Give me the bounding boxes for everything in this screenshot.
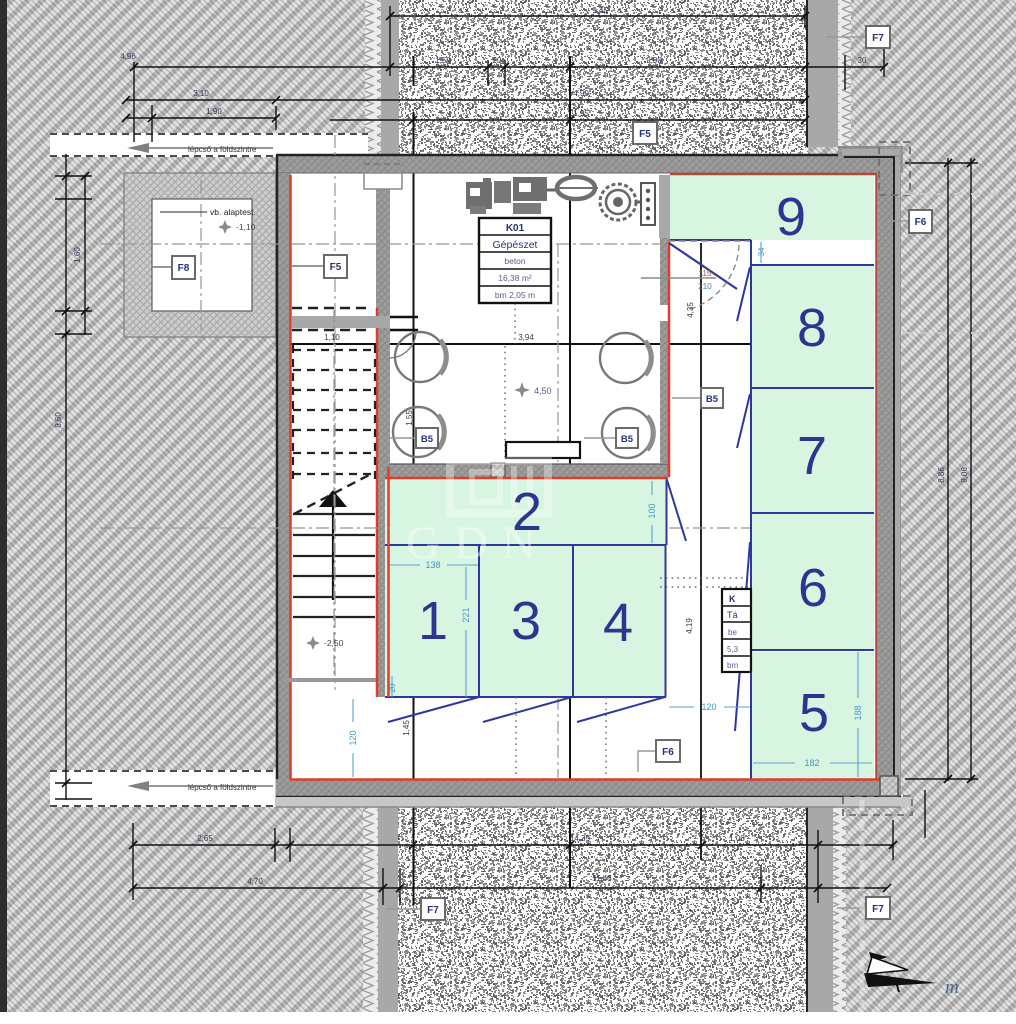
svg-text:3: 3: [511, 591, 541, 651]
svg-text:34: 34: [757, 247, 766, 256]
svg-text:F8: F8: [178, 263, 190, 274]
svg-text:-1,10: -1,10: [236, 222, 256, 232]
svg-text:3,94: 3,94: [518, 333, 534, 342]
svg-text:120: 120: [348, 730, 358, 745]
svg-text:5,3: 5,3: [727, 645, 739, 654]
svg-text:2: 2: [512, 482, 542, 542]
svg-text:8,60: 8,60: [54, 412, 63, 428]
svg-text:B5: B5: [706, 394, 719, 405]
svg-text:20: 20: [493, 56, 502, 65]
svg-text:4,19: 4,19: [685, 618, 694, 634]
svg-text:11,45: 11,45: [592, 874, 612, 883]
svg-text:4,70: 4,70: [247, 877, 263, 886]
svg-text:1,55: 1,55: [405, 410, 414, 426]
svg-text:B5: B5: [621, 434, 634, 445]
svg-text:1,00: 1,00: [729, 834, 745, 843]
svg-text:9,45: 9,45: [592, 6, 608, 15]
svg-text:20: 20: [388, 683, 397, 692]
svg-text:vb. alaptest: vb. alaptest: [210, 207, 254, 217]
svg-text:K01: K01: [506, 223, 525, 234]
svg-text:bm 2,05 m: bm 2,05 m: [495, 290, 535, 300]
svg-text:221: 221: [461, 607, 471, 622]
svg-text:4,35: 4,35: [686, 302, 695, 318]
svg-text:m: m: [945, 977, 959, 998]
svg-text:14,35: 14,35: [570, 834, 591, 843]
svg-text:7: 7: [797, 426, 827, 486]
svg-text:bm: bm: [727, 661, 738, 670]
svg-text:9,00: 9,00: [646, 56, 662, 65]
svg-text:F5: F5: [330, 262, 342, 273]
svg-text:210: 210: [698, 282, 712, 291]
svg-text:Gépészet: Gépészet: [493, 239, 538, 251]
svg-text:1,60: 1,60: [73, 247, 82, 263]
svg-text:1,90: 1,90: [206, 107, 222, 116]
svg-text:lépcső a földszintre: lépcső a földszintre: [188, 783, 257, 792]
svg-text:120: 120: [701, 702, 716, 712]
svg-text:5: 5: [799, 683, 829, 743]
svg-text:115: 115: [699, 269, 712, 278]
svg-text:1,95: 1,95: [573, 109, 589, 118]
svg-text:K: K: [729, 594, 736, 604]
svg-text:beton: beton: [504, 256, 526, 266]
svg-text:16,38 m²: 16,38 m²: [498, 273, 532, 283]
svg-text:30: 30: [784, 877, 793, 886]
svg-text:188: 188: [853, 705, 863, 720]
svg-text:4,90: 4,90: [573, 89, 589, 98]
svg-text:be: be: [728, 628, 737, 637]
svg-text:1,50: 1,50: [435, 56, 451, 65]
svg-text:F5: F5: [639, 129, 651, 140]
svg-text:4: 4: [603, 593, 633, 653]
svg-text:F6: F6: [662, 747, 674, 758]
svg-text:4,50: 4,50: [534, 386, 552, 396]
svg-text:1: 1: [418, 591, 448, 651]
svg-text:6: 6: [798, 558, 828, 618]
svg-text:Tá: Tá: [727, 610, 738, 620]
svg-text:138: 138: [425, 560, 440, 570]
svg-text:F7: F7: [872, 904, 884, 915]
svg-text:100: 100: [647, 503, 657, 518]
svg-text:8: 8: [797, 298, 827, 358]
svg-text:F6: F6: [915, 217, 927, 228]
svg-text:2,65: 2,65: [197, 834, 213, 843]
svg-text:9: 9: [776, 187, 806, 247]
svg-text:3,10: 3,10: [193, 89, 209, 98]
svg-text:9,06: 9,06: [960, 467, 969, 483]
svg-text:30: 30: [858, 56, 867, 65]
svg-text:F7: F7: [427, 905, 439, 916]
svg-text:-2,50: -2,50: [324, 638, 344, 648]
svg-text:182: 182: [804, 758, 819, 768]
svg-text:4,96: 4,96: [120, 52, 136, 61]
svg-text:B5: B5: [421, 434, 434, 445]
svg-text:8,86: 8,86: [937, 467, 946, 483]
svg-text:lépcső a földszintre: lépcső a földszintre: [188, 145, 257, 154]
svg-text:1,10: 1,10: [324, 333, 340, 342]
svg-text:1,45: 1,45: [402, 720, 411, 736]
svg-text:F7: F7: [872, 33, 884, 44]
